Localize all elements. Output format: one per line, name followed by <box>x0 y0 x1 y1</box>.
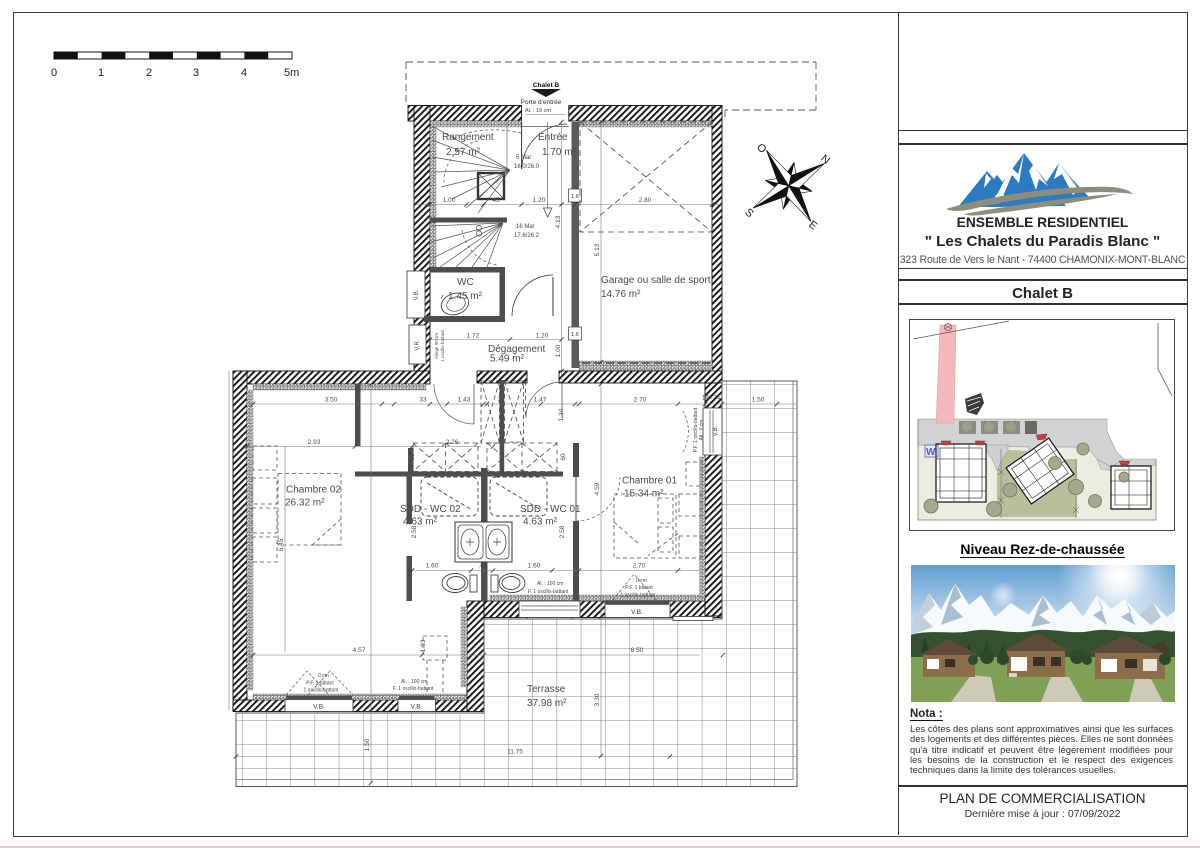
svg-text:Entrée: Entrée <box>538 132 568 143</box>
svg-text:2.93: 2.93 <box>308 439 321 446</box>
svg-text:O: O <box>754 141 769 156</box>
svg-text:V.B.: V.B. <box>713 425 719 436</box>
svg-text:1.70 m²: 1.70 m² <box>542 147 577 158</box>
svg-text:60: 60 <box>560 453 567 461</box>
svg-text:5 Mar: 5 Mar <box>516 155 531 161</box>
svg-text:V.B.: V.B. <box>313 704 325 711</box>
svg-text:4.59: 4.59 <box>594 482 601 495</box>
svg-text:6.45: 6.45 <box>278 538 285 551</box>
svg-text:14.76 m²: 14.76 m² <box>601 289 641 300</box>
svg-text:3.50: 3.50 <box>325 397 338 404</box>
svg-text:0: 0 <box>51 67 57 79</box>
svg-text:2.70: 2.70 <box>633 563 646 570</box>
svg-text:Al. : 100 cm: Al. : 100 cm <box>401 679 427 685</box>
svg-text:1.43: 1.43 <box>458 397 471 404</box>
svg-text:2.26: 2.26 <box>446 439 459 446</box>
svg-text:E: E <box>806 219 819 233</box>
svg-text:Garage ou salle de sport: Garage ou salle de sport <box>601 275 711 286</box>
svg-text:1.60: 1.60 <box>528 563 541 570</box>
svg-text:SDD - WC 02: SDD - WC 02 <box>400 504 461 515</box>
svg-text:1: 1 <box>98 67 104 79</box>
svg-text:Al. : 19 cm: Al. : 19 cm <box>525 108 551 114</box>
svg-text:Alt : 0 cm: Alt : 0 cm <box>699 420 705 441</box>
svg-text:17.6/26.2: 17.6/26.2 <box>514 233 540 239</box>
svg-text:3.30: 3.30 <box>594 693 601 706</box>
svg-text:Al. : 100 cm: Al. : 100 cm <box>537 581 563 587</box>
svg-text:Terrasse: Terrasse <box>527 684 566 695</box>
svg-text:1 oscillo-battant: 1 oscillo-battant <box>303 688 339 694</box>
svg-text:2.80: 2.80 <box>639 197 652 204</box>
svg-text:5.13: 5.13 <box>594 243 601 256</box>
svg-text:14+24: 14+24 <box>702 395 721 402</box>
svg-text:V.R.: V.R. <box>415 339 421 350</box>
svg-text:4.13: 4.13 <box>555 215 562 228</box>
svg-text:F. 1 oscillo-battant: F. 1 oscillo-battant <box>393 686 434 692</box>
svg-text:16 Mar: 16 Mar <box>516 224 535 230</box>
svg-text:16.0/26.0: 16.0/26.0 <box>514 164 540 170</box>
svg-text:4.63 m²: 4.63 m² <box>523 517 558 528</box>
svg-text:4.63 m²: 4.63 m² <box>403 517 438 528</box>
svg-text:2.70: 2.70 <box>634 397 647 404</box>
svg-text:Porte d'entrée: Porte d'entrée <box>521 99 562 106</box>
svg-text:2: 2 <box>146 67 152 79</box>
svg-text:1.47: 1.47 <box>534 397 547 404</box>
svg-text:1.00: 1.00 <box>443 197 456 204</box>
svg-text:2.57 m²: 2.57 m² <box>446 147 481 158</box>
svg-text:37.98 m²: 37.98 m² <box>527 698 567 709</box>
svg-text:1.45 m²: 1.45 m² <box>448 291 483 302</box>
svg-text:60: 60 <box>409 453 416 461</box>
svg-text:45: 45 <box>492 197 500 204</box>
svg-text:5.49 m²: 5.49 m² <box>490 354 525 365</box>
svg-text:1.50: 1.50 <box>752 397 765 404</box>
svg-text:1.20: 1.20 <box>536 333 549 340</box>
svg-text:1.60: 1.60 <box>426 563 439 570</box>
svg-text:1.50: 1.50 <box>364 738 371 751</box>
svg-text:7: 7 <box>497 397 501 404</box>
svg-text:33: 33 <box>419 397 427 404</box>
svg-text:11.75: 11.75 <box>507 749 523 756</box>
svg-text:P.F. 1 bâtant: P.F. 1 bâtant <box>625 585 653 591</box>
svg-text:4.57: 4.57 <box>353 647 366 654</box>
svg-text:1 oscillo-battant: 1 oscillo-battant <box>620 593 656 599</box>
svg-text:SDD - WC 01: SDD - WC 01 <box>520 504 581 515</box>
svg-text:26.32 m²: 26.32 m² <box>285 498 325 509</box>
svg-text:Chambre 01: Chambre 01 <box>622 476 677 487</box>
svg-text:Rangement: Rangement <box>442 132 494 143</box>
svg-text:1.34: 1.34 <box>558 408 565 421</box>
svg-text:15.34 m²: 15.34 m² <box>624 489 664 500</box>
svg-text:P.F. 1 bâtant: P.F. 1 bâtant <box>306 681 334 687</box>
svg-text:1.6: 1.6 <box>571 194 579 200</box>
svg-text:1.6: 1.6 <box>571 332 579 338</box>
svg-text:S: S <box>742 206 755 220</box>
svg-text:W: W <box>926 447 936 458</box>
svg-text:Chalet B: Chalet B <box>533 82 560 89</box>
svg-text:1.72: 1.72 <box>467 333 480 340</box>
svg-text:: 0 cm: : 0 cm <box>315 673 329 679</box>
svg-text:: 0 cm: : 0 cm <box>633 578 647 584</box>
svg-text:6.50: 6.50 <box>631 647 644 654</box>
svg-text:Allège 90 cm: Allège 90 cm <box>434 333 439 359</box>
svg-text:V.B.: V.B. <box>414 289 420 300</box>
svg-text:F. 1 oscillo-battant: F. 1 oscillo-battant <box>528 589 569 595</box>
svg-text:2.58: 2.58 <box>411 525 418 538</box>
svg-text:1 oscillo-battant: 1 oscillo-battant <box>440 329 445 361</box>
svg-text:5m: 5m <box>284 67 299 79</box>
svg-text:1.00: 1.00 <box>555 344 562 357</box>
svg-text:.60: .60 <box>478 563 487 570</box>
svg-text:V.B.: V.B. <box>631 609 643 616</box>
svg-text:2.58: 2.58 <box>559 525 566 538</box>
svg-text:WC: WC <box>457 277 474 288</box>
svg-text:1.93: 1.93 <box>420 639 427 652</box>
svg-text:1.20: 1.20 <box>533 197 546 204</box>
svg-text:V.B.: V.B. <box>411 704 423 711</box>
svg-text:Chambre 02: Chambre 02 <box>286 485 341 496</box>
svg-text:3: 3 <box>193 67 199 79</box>
svg-text:4: 4 <box>241 67 247 79</box>
